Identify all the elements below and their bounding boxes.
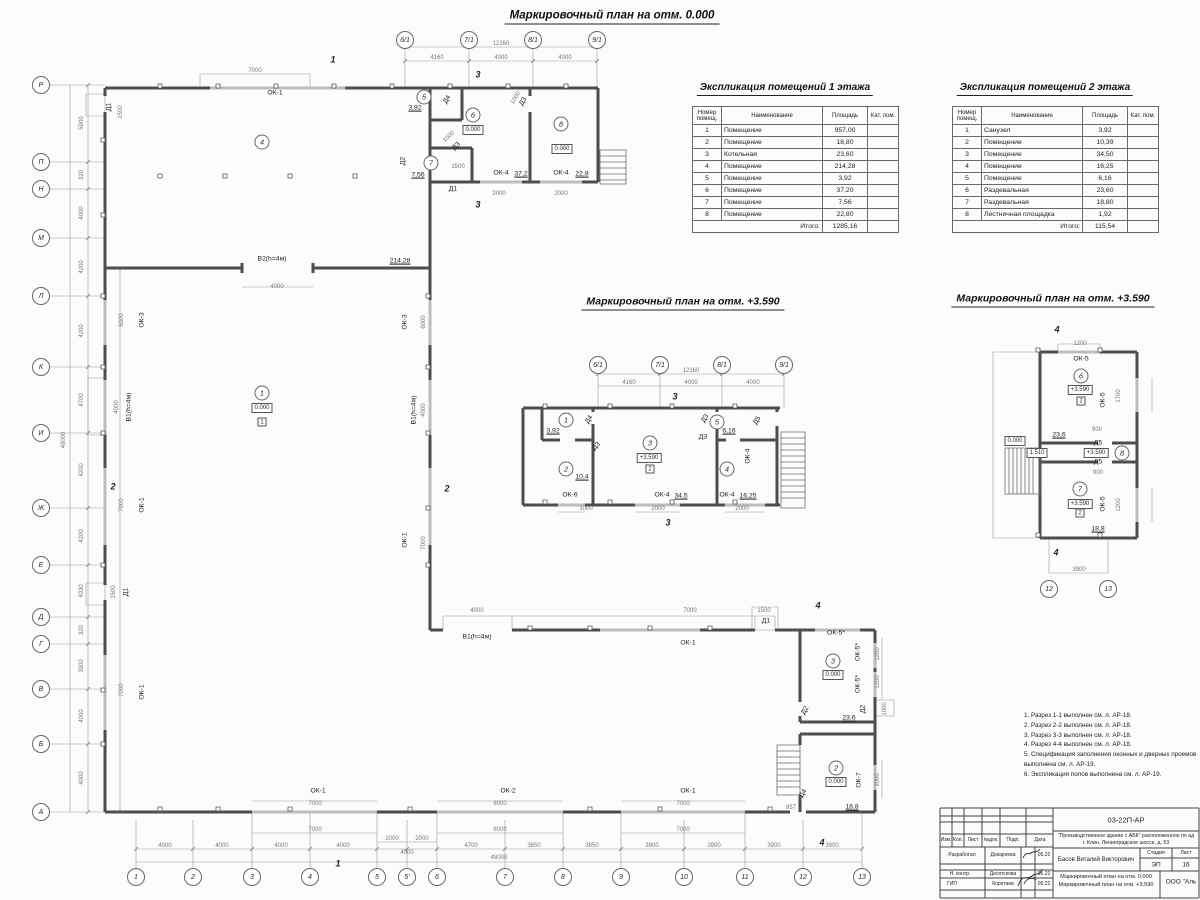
table-cell: 23,60 bbox=[823, 149, 868, 161]
staff-date: 05.22 bbox=[1038, 871, 1051, 877]
note-line: 6. Экспликация полов выполнена см. л. АР… bbox=[1024, 770, 1200, 780]
table-row: 4Помещение214,28 bbox=[693, 161, 899, 173]
dimension-text: 4000 bbox=[158, 843, 171, 849]
dimension-text: 6000 bbox=[119, 313, 125, 326]
axis-bubble: М bbox=[32, 229, 50, 247]
stage-label: Стадия bbox=[1147, 850, 1165, 856]
table-header: Кат. пом. bbox=[1128, 107, 1159, 125]
dimension-text: 2000 bbox=[415, 836, 428, 842]
table-cell: Помещение bbox=[722, 209, 823, 221]
dimension-text: 4200 bbox=[79, 463, 85, 476]
level-mark: 1.510 bbox=[1026, 448, 1047, 458]
sheet-title-line2: Маркировочный план на отм. +3.590 bbox=[1059, 882, 1154, 888]
total-label: Итого: bbox=[953, 221, 1083, 233]
level-mark: 0.000 bbox=[251, 403, 272, 413]
axis-bubble: 6/1 bbox=[589, 356, 607, 374]
floor-type-tag: 1 bbox=[258, 418, 267, 427]
table-row: 4Помещение16,25 bbox=[953, 161, 1159, 173]
area-value: 3,92 bbox=[408, 106, 421, 113]
axis-bubble: 5 bbox=[368, 868, 386, 886]
sheet-value: 16 bbox=[1182, 862, 1189, 869]
axis-bubble: Е bbox=[32, 556, 50, 574]
axis-bubble: 9/1 bbox=[588, 31, 606, 49]
dimension-text: 4700 bbox=[464, 843, 477, 849]
dimension-text: 957 bbox=[786, 805, 796, 811]
dimension-text: 4000 bbox=[421, 403, 427, 416]
table-cell bbox=[868, 185, 899, 197]
axis-bubble: Д bbox=[32, 608, 50, 626]
table-cell: Помещение bbox=[982, 161, 1083, 173]
staff-date: 05.22 bbox=[1038, 852, 1051, 858]
mark-label: ОК-7 bbox=[857, 772, 864, 787]
table-cell: 16,25 bbox=[1083, 161, 1128, 173]
room-number: 4 bbox=[255, 135, 270, 150]
staff-role: ГИП bbox=[947, 881, 957, 887]
table-row: 6Раздевальная23,60 bbox=[953, 185, 1159, 197]
table-cell bbox=[868, 161, 899, 173]
mark-label: В1(h=4м) bbox=[412, 395, 419, 424]
axis-bubble: 7/1 bbox=[651, 356, 669, 374]
dimension-text: 5900 bbox=[79, 116, 85, 129]
floor-type-tag: 2 bbox=[1077, 397, 1086, 406]
room-number: 3 bbox=[643, 436, 658, 451]
floor-type-tag: 2 bbox=[1076, 509, 1085, 518]
dimension-text: 3850 bbox=[585, 843, 598, 849]
dimension-text: 1500 bbox=[757, 608, 770, 614]
col-ndok: №док. bbox=[984, 837, 999, 843]
project-line2: г. Клин, Ленинградское шоссе, д. 53 bbox=[1083, 840, 1169, 846]
area-value: 10,4 bbox=[575, 475, 588, 482]
table-cell: 18,80 bbox=[823, 137, 868, 149]
table-row: 8Лестничная площадка1,92 bbox=[953, 209, 1159, 221]
dimension-text: 3900 bbox=[825, 843, 838, 849]
dimension-text: 4200 bbox=[79, 324, 85, 337]
mark-label: ОК-5 bbox=[1101, 392, 1108, 407]
dimension-text: 4160 bbox=[622, 380, 635, 386]
axis-bubble: 12 bbox=[794, 868, 812, 886]
table-cell: 23,60 bbox=[1083, 185, 1128, 197]
note-line: 1. Разрез 1-1 выполнен см. л. АР-18. bbox=[1024, 711, 1200, 721]
axis-bubble: Н bbox=[32, 180, 50, 198]
table-cell: Помещение bbox=[982, 173, 1083, 185]
axis-bubble: Р bbox=[32, 76, 50, 94]
dimension-text: 4200 bbox=[79, 529, 85, 542]
table-header: Площадь bbox=[823, 107, 868, 125]
area-value: 22,8 bbox=[575, 172, 588, 179]
room-number: 8 bbox=[554, 117, 569, 132]
area-value: 18,8 bbox=[1091, 527, 1104, 534]
dimension-text: 4000 bbox=[79, 709, 85, 722]
table-cell bbox=[1128, 197, 1159, 209]
mark-label: Д1 bbox=[124, 588, 131, 596]
table-row: 1Помещение957,00 bbox=[693, 125, 899, 137]
dimension-text: 2000 bbox=[492, 191, 505, 197]
table-cell: 214,28 bbox=[823, 161, 868, 173]
axis-bubble: 4 bbox=[301, 868, 319, 886]
note-line: 2. Разрез 2-2 выполнен см. л. АР-18. bbox=[1024, 721, 1200, 731]
table2-title: Экспликация помещений 2 этажа bbox=[957, 82, 1133, 96]
staff-name: Докарнева bbox=[990, 852, 1015, 858]
dimension-text: 1000 bbox=[579, 506, 592, 512]
dimension-text: 2000 bbox=[385, 836, 398, 842]
section-mark: 1 bbox=[335, 860, 340, 869]
room-number: 4 bbox=[720, 462, 735, 477]
axis-bubble: Л bbox=[32, 287, 50, 305]
notes-list: 1. Разрез 1-1 выполнен см. л. АР-18.2. Р… bbox=[1024, 711, 1200, 779]
total-value: 115,54 bbox=[1083, 221, 1128, 233]
company-name: ООО "Аль bbox=[1166, 879, 1197, 886]
table-cell: 3,92 bbox=[823, 173, 868, 185]
stage-value: ЭП bbox=[1151, 862, 1160, 869]
room-number: 7 bbox=[424, 156, 439, 171]
staff-role: Разработал bbox=[948, 852, 975, 858]
table-cell: 4 bbox=[693, 161, 722, 173]
axis-bubble: 8/1 bbox=[524, 31, 542, 49]
mark-label: ОК-5 bbox=[1073, 357, 1088, 364]
mark-label: Д1 bbox=[449, 187, 457, 194]
table-cell: 22,80 bbox=[823, 209, 868, 221]
table-cell bbox=[868, 149, 899, 161]
sheet-title-line1: Маркировочный план на отм. 0.000 bbox=[1060, 874, 1152, 880]
table-cell: 2 bbox=[953, 137, 982, 149]
table-cell: 4 bbox=[953, 161, 982, 173]
mark-label: Д5 bbox=[1094, 441, 1102, 448]
dimension-text: 1200 bbox=[1116, 498, 1122, 511]
section-mark: 3 bbox=[665, 519, 670, 528]
table-row: 5Помещение3,92 bbox=[693, 173, 899, 185]
dimension-text: 900 bbox=[1093, 470, 1103, 476]
col-podp: Подп. bbox=[1006, 837, 1019, 843]
section-mark: 3 bbox=[475, 71, 480, 80]
room-number: 1 bbox=[559, 413, 574, 428]
table-cell bbox=[1128, 161, 1159, 173]
level-mark: +3.590 bbox=[1068, 385, 1093, 395]
axis-bubble: П bbox=[32, 153, 50, 171]
dimension-text: 7000 bbox=[119, 683, 125, 696]
table-cell: 3 bbox=[953, 149, 982, 161]
table-cell bbox=[868, 221, 899, 233]
dimension-text: 1200 bbox=[1073, 341, 1086, 347]
room-number: 5 bbox=[417, 90, 432, 105]
table-header: Наименование bbox=[722, 107, 823, 125]
dimension-text: 3900 bbox=[1072, 567, 1085, 573]
dimension-text: 4000 bbox=[274, 843, 287, 849]
table-row: 7Помещение7,56 bbox=[693, 197, 899, 209]
mark-label: ОК-5* bbox=[827, 631, 845, 638]
table-cell: 7 bbox=[953, 197, 982, 209]
mark-label: Д5 bbox=[1094, 460, 1102, 467]
level-mark: 0.000 bbox=[825, 777, 846, 787]
staff-name: Десятскова bbox=[990, 871, 1017, 877]
dimension-text: 1700 bbox=[1116, 389, 1122, 402]
table-row: 8Помещение22,80 bbox=[693, 209, 899, 221]
axis-bubble: 7/1 bbox=[460, 31, 478, 49]
mark-label: Д3 bbox=[699, 435, 707, 442]
table-cell bbox=[868, 197, 899, 209]
axis-bubble: 13 bbox=[1099, 580, 1117, 598]
axis-bubble: И bbox=[32, 424, 50, 442]
table-cell: 10,39 bbox=[1083, 137, 1128, 149]
dimension-text: 7000 bbox=[308, 827, 321, 833]
room-number: 2 bbox=[829, 761, 844, 776]
mark-label: ОК-1 bbox=[310, 789, 325, 796]
area-value: 214,28 bbox=[390, 259, 411, 266]
dimension-text: 2000 bbox=[651, 506, 664, 512]
dimension-text: 8000 bbox=[493, 801, 506, 807]
dimension-text: 7000 bbox=[676, 801, 689, 807]
axis-bubble: 8 bbox=[554, 868, 572, 886]
dimension-text: 4000 bbox=[746, 380, 759, 386]
dimension-text: 1200 bbox=[875, 647, 881, 660]
note-line: 5. Спецификация заполнения оконных и две… bbox=[1024, 750, 1200, 770]
mark-label: В2(h=4м) bbox=[257, 257, 286, 264]
table-cell bbox=[868, 125, 899, 137]
dimension-text: 4000 bbox=[336, 843, 349, 849]
table-cell: Раздевальная bbox=[982, 185, 1083, 197]
area-value: 23,6 bbox=[842, 716, 855, 723]
dimension-text: 7000 bbox=[676, 827, 689, 833]
level-mark: +3.590 bbox=[637, 453, 662, 463]
level-mark: 0.000 bbox=[462, 125, 483, 135]
dimension-text: 12160 bbox=[683, 368, 700, 374]
area-value: 3,92 bbox=[546, 429, 559, 436]
plan2-title: Маркировочный план на отм. +3.590 bbox=[581, 296, 784, 311]
mark-label: ОК-1 bbox=[680, 789, 695, 796]
table-cell bbox=[868, 209, 899, 221]
dimension-text: 4160 bbox=[430, 55, 443, 61]
mark-label: ОК-4 bbox=[719, 493, 734, 500]
col-kol: Кол. bbox=[953, 837, 963, 843]
axis-bubble: 1 bbox=[127, 868, 145, 886]
table1-title: Экспликация помещений 1 этажа bbox=[697, 82, 873, 96]
dimension-text: 320 bbox=[79, 170, 85, 180]
author-name: Басов Виталий Викторович bbox=[1058, 857, 1134, 863]
table-cell: 34,50 bbox=[1083, 149, 1128, 161]
total-value: 1285,16 bbox=[823, 221, 868, 233]
level-mark: 0.000 bbox=[822, 670, 843, 680]
mark-label: Д2 bbox=[861, 705, 868, 713]
table-cell bbox=[1128, 173, 1159, 185]
room-number: 2 bbox=[559, 462, 574, 477]
axis-bubble: А bbox=[32, 803, 50, 821]
table-header: Кат. пом. bbox=[868, 107, 899, 125]
table-cell bbox=[868, 137, 899, 149]
section-mark: 4 bbox=[1054, 326, 1059, 335]
dimension-text: 4000 bbox=[79, 206, 85, 219]
table-cell bbox=[1128, 125, 1159, 137]
axis-bubble: 9 bbox=[612, 868, 630, 886]
axis-bubble: Г bbox=[32, 635, 50, 653]
table-cell bbox=[1128, 149, 1159, 161]
table-row: 6Помещение37,20 bbox=[693, 185, 899, 197]
col-list: Лист bbox=[968, 837, 979, 843]
floor-type-tag: 2 bbox=[646, 465, 655, 474]
mark-label: ОК-1 bbox=[140, 684, 147, 699]
dimension-text: 4000 bbox=[270, 284, 283, 290]
dimension-text: 3900 bbox=[707, 843, 720, 849]
table-row: 3Помещение34,50 bbox=[953, 149, 1159, 161]
dimension-text: 4000 bbox=[494, 55, 507, 61]
dimension-text: 3850 bbox=[527, 843, 540, 849]
table-cell: Помещение bbox=[722, 125, 823, 137]
dimension-text: 3900 bbox=[79, 659, 85, 672]
table-header: Номер помещ. bbox=[953, 107, 982, 125]
staff-name: Коротаев bbox=[992, 881, 1014, 887]
table-row: 7Раздевальная18,80 bbox=[953, 197, 1159, 209]
section-mark: 2 bbox=[110, 483, 115, 492]
table-header: Номер помещ. bbox=[693, 107, 722, 125]
table-cell: 18,80 bbox=[1083, 197, 1128, 209]
table-cell: 8 bbox=[953, 209, 982, 221]
table-cell: Помещение bbox=[982, 137, 1083, 149]
dimension-text: 48000 bbox=[491, 855, 508, 861]
axis-bubble: 11 bbox=[736, 868, 754, 886]
area-value: 16,25 bbox=[739, 494, 756, 501]
dimension-text: 4000 bbox=[215, 843, 228, 849]
dimension-text: 1200 bbox=[875, 675, 881, 688]
axis-bubble: 6/1 bbox=[396, 31, 414, 49]
dimension-text: 320 bbox=[79, 625, 85, 635]
dimension-text: 4000 bbox=[79, 771, 85, 784]
mark-label: ОК-4 bbox=[654, 493, 669, 500]
area-value: 18,8 bbox=[845, 805, 858, 812]
table-cell: 5 bbox=[693, 173, 722, 185]
area-value: 7,56 bbox=[411, 173, 424, 180]
axis-bubble: К bbox=[32, 358, 50, 376]
table-cell: 7,56 bbox=[823, 197, 868, 209]
room-schedule-floor2: Номер помещ.НаименованиеПлощадьКат. пом.… bbox=[952, 106, 1159, 233]
area-value: 23,6 bbox=[1052, 433, 1065, 440]
table-row: 3Котельная23,60 bbox=[693, 149, 899, 161]
section-mark: 4 bbox=[1053, 549, 1058, 558]
room-number: 6 bbox=[466, 108, 481, 123]
dimension-text: 4000 bbox=[684, 380, 697, 386]
note-line: 3. Разрез 3-3 выполнен см. л. АР-18. bbox=[1024, 731, 1200, 741]
mark-label: ОК-4 bbox=[746, 448, 753, 463]
level-mark: +3.590 bbox=[1068, 499, 1093, 509]
dimension-text: 1500 bbox=[111, 585, 117, 598]
room-number: 6 bbox=[1074, 369, 1089, 384]
stairs bbox=[600, 150, 1040, 795]
dimension-text: 7000 bbox=[119, 498, 125, 511]
table-cell bbox=[868, 173, 899, 185]
table-cell: 37,20 bbox=[823, 185, 868, 197]
mark-label: ОК-4 bbox=[553, 171, 568, 178]
table-header: Наименование bbox=[982, 107, 1083, 125]
table-cell bbox=[1128, 209, 1159, 221]
table-cell: 6 bbox=[953, 185, 982, 197]
dimension-text: 2000 bbox=[554, 191, 567, 197]
note-line: 4. Разрез 4-4 выполнен см. л. АР-18. bbox=[1024, 740, 1200, 750]
table-cell: Помещение bbox=[982, 149, 1083, 161]
staff-role: Н. контр. bbox=[950, 871, 971, 877]
room-number: 3 bbox=[826, 654, 841, 669]
section-mark: 3 bbox=[475, 201, 480, 210]
room-schedule-floor1: Номер помещ.НаименованиеПлощадьКат. пом.… bbox=[692, 106, 899, 233]
mark-label: ОК-6 bbox=[562, 493, 577, 500]
table-cell: Помещение bbox=[722, 173, 823, 185]
room-number: 1 bbox=[255, 386, 270, 401]
table-cell bbox=[1128, 137, 1159, 149]
dimension-text: 2000 bbox=[735, 506, 748, 512]
section-mark: 4 bbox=[815, 602, 820, 611]
table-cell: Котельная bbox=[722, 149, 823, 161]
mark-label: В1(h=4м) bbox=[127, 392, 134, 421]
dimension-text: 7000 bbox=[421, 536, 427, 549]
section-mark: 4 bbox=[819, 839, 824, 848]
dimension-text: 4000 bbox=[558, 55, 571, 61]
mark-label: ОК-1 bbox=[403, 532, 410, 547]
axis-bubble: 12 bbox=[1040, 580, 1058, 598]
mark-label: Д2 bbox=[401, 157, 408, 165]
level-mark: +3.590 bbox=[1084, 448, 1109, 458]
table-cell: Помещение bbox=[722, 137, 823, 149]
dimension-text: 12160 bbox=[493, 41, 510, 47]
col-data: Дата bbox=[1034, 837, 1045, 843]
area-value: 34,5 bbox=[674, 494, 687, 501]
section-mark: 2 bbox=[444, 485, 449, 494]
axis-bubble: 10 bbox=[675, 868, 693, 886]
table-cell: Лестничная площадка bbox=[982, 209, 1083, 221]
mark-label: ОК-5 bbox=[1101, 496, 1108, 511]
table-row: 1Санузел3,92 bbox=[953, 125, 1159, 137]
level-mark: 0.000 bbox=[551, 144, 572, 154]
plan1-title: Маркировочный план на отм. 0.000 bbox=[505, 10, 720, 25]
axis-bubble: 8/1 bbox=[713, 356, 731, 374]
dimension-text: 3900 bbox=[767, 843, 780, 849]
mark-label: ОК-4 bbox=[493, 171, 508, 178]
area-value: 6,16 bbox=[722, 429, 735, 436]
table-cell: 957,00 bbox=[823, 125, 868, 137]
mark-label: ОК-1 bbox=[267, 91, 282, 98]
table-cell bbox=[1128, 185, 1159, 197]
doc-number: 03-22П-АР bbox=[1107, 816, 1144, 825]
axis-bubble: 3 bbox=[243, 868, 261, 886]
mark-label: ОК-2 bbox=[500, 789, 515, 796]
table-cell: 6 bbox=[693, 185, 722, 197]
mark-label: ОК-3 bbox=[140, 312, 147, 327]
mark-label: ОК-3 bbox=[403, 314, 410, 329]
dimension-text: 7000 bbox=[248, 68, 261, 74]
dimension-text: 4030 bbox=[79, 584, 85, 597]
table-cell: Санузел bbox=[982, 125, 1083, 137]
table-cell: 3 bbox=[693, 149, 722, 161]
axis-bubble: 5' bbox=[398, 868, 416, 886]
dimension-text: 1000 bbox=[882, 702, 888, 715]
project-line1: "Производственное здание с АБК" располож… bbox=[1058, 833, 1194, 839]
dimension-text: 48000 bbox=[61, 432, 67, 449]
dimension-text: 7000 bbox=[683, 608, 696, 614]
table-cell: 8 bbox=[693, 209, 722, 221]
table-cell: 6,16 bbox=[1083, 173, 1128, 185]
section-mark: 1 bbox=[330, 56, 335, 65]
table-cell: Помещение bbox=[722, 185, 823, 197]
mark-label: ОК-5* bbox=[856, 643, 863, 661]
dimension-text: 8000 bbox=[493, 827, 506, 833]
dimension-text: 900 bbox=[1092, 427, 1102, 433]
dimension-text: 4700 bbox=[79, 393, 85, 406]
mark-label: Д1 bbox=[762, 619, 770, 626]
section-mark: 3 bbox=[672, 393, 677, 402]
table-cell: 5 bbox=[953, 173, 982, 185]
drawing-sheet: Маркировочный план на отм. 0.000 Маркиро… bbox=[0, 0, 1200, 900]
axis-bubble: Ж bbox=[32, 499, 50, 517]
staff-date: 05.22 bbox=[1038, 881, 1051, 887]
plan3-title: Маркировочный план на отм. +3.590 bbox=[951, 293, 1154, 308]
table-cell: Помещение bbox=[722, 197, 823, 209]
axis-bubble: В bbox=[32, 680, 50, 698]
axis-bubble: Б bbox=[32, 735, 50, 753]
